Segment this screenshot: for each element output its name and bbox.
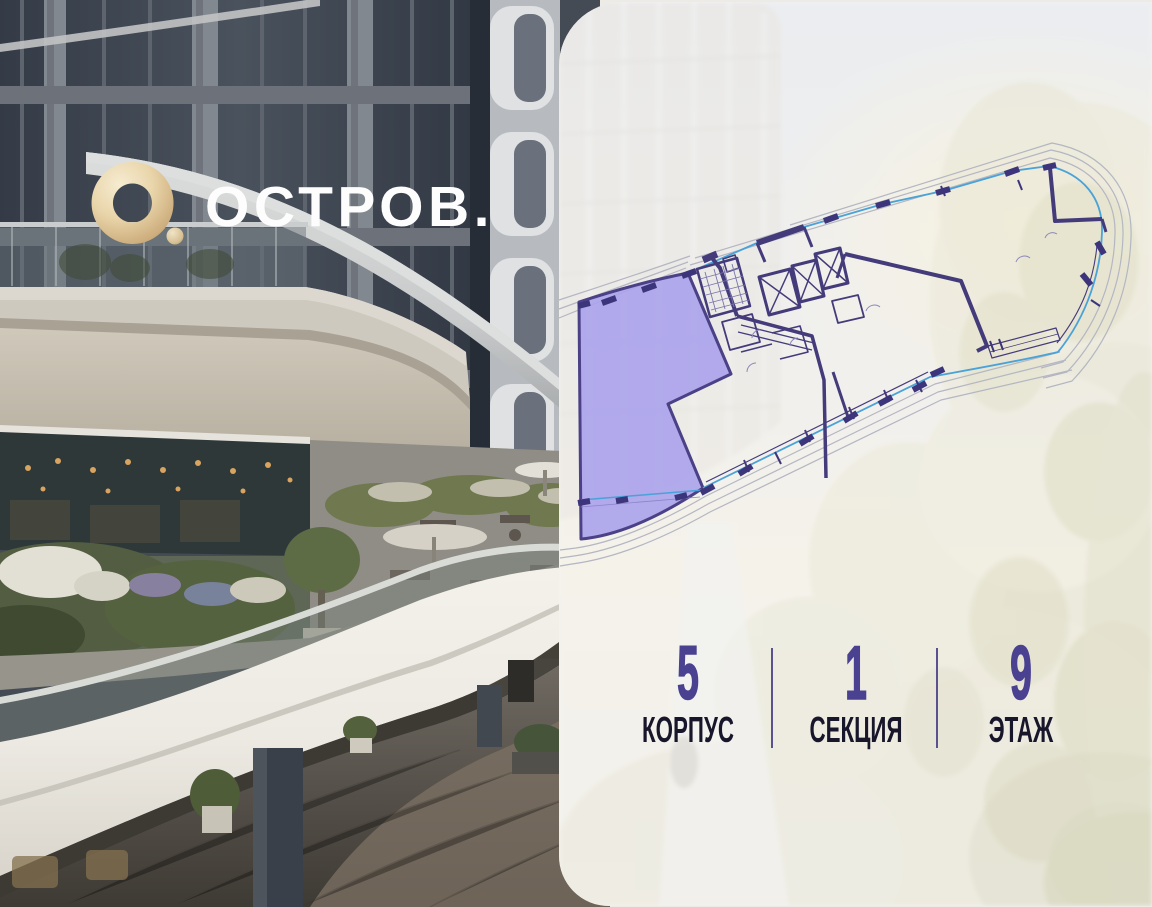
svg-text:ОСТРОВ.: ОСТРОВ. (205, 175, 494, 239)
